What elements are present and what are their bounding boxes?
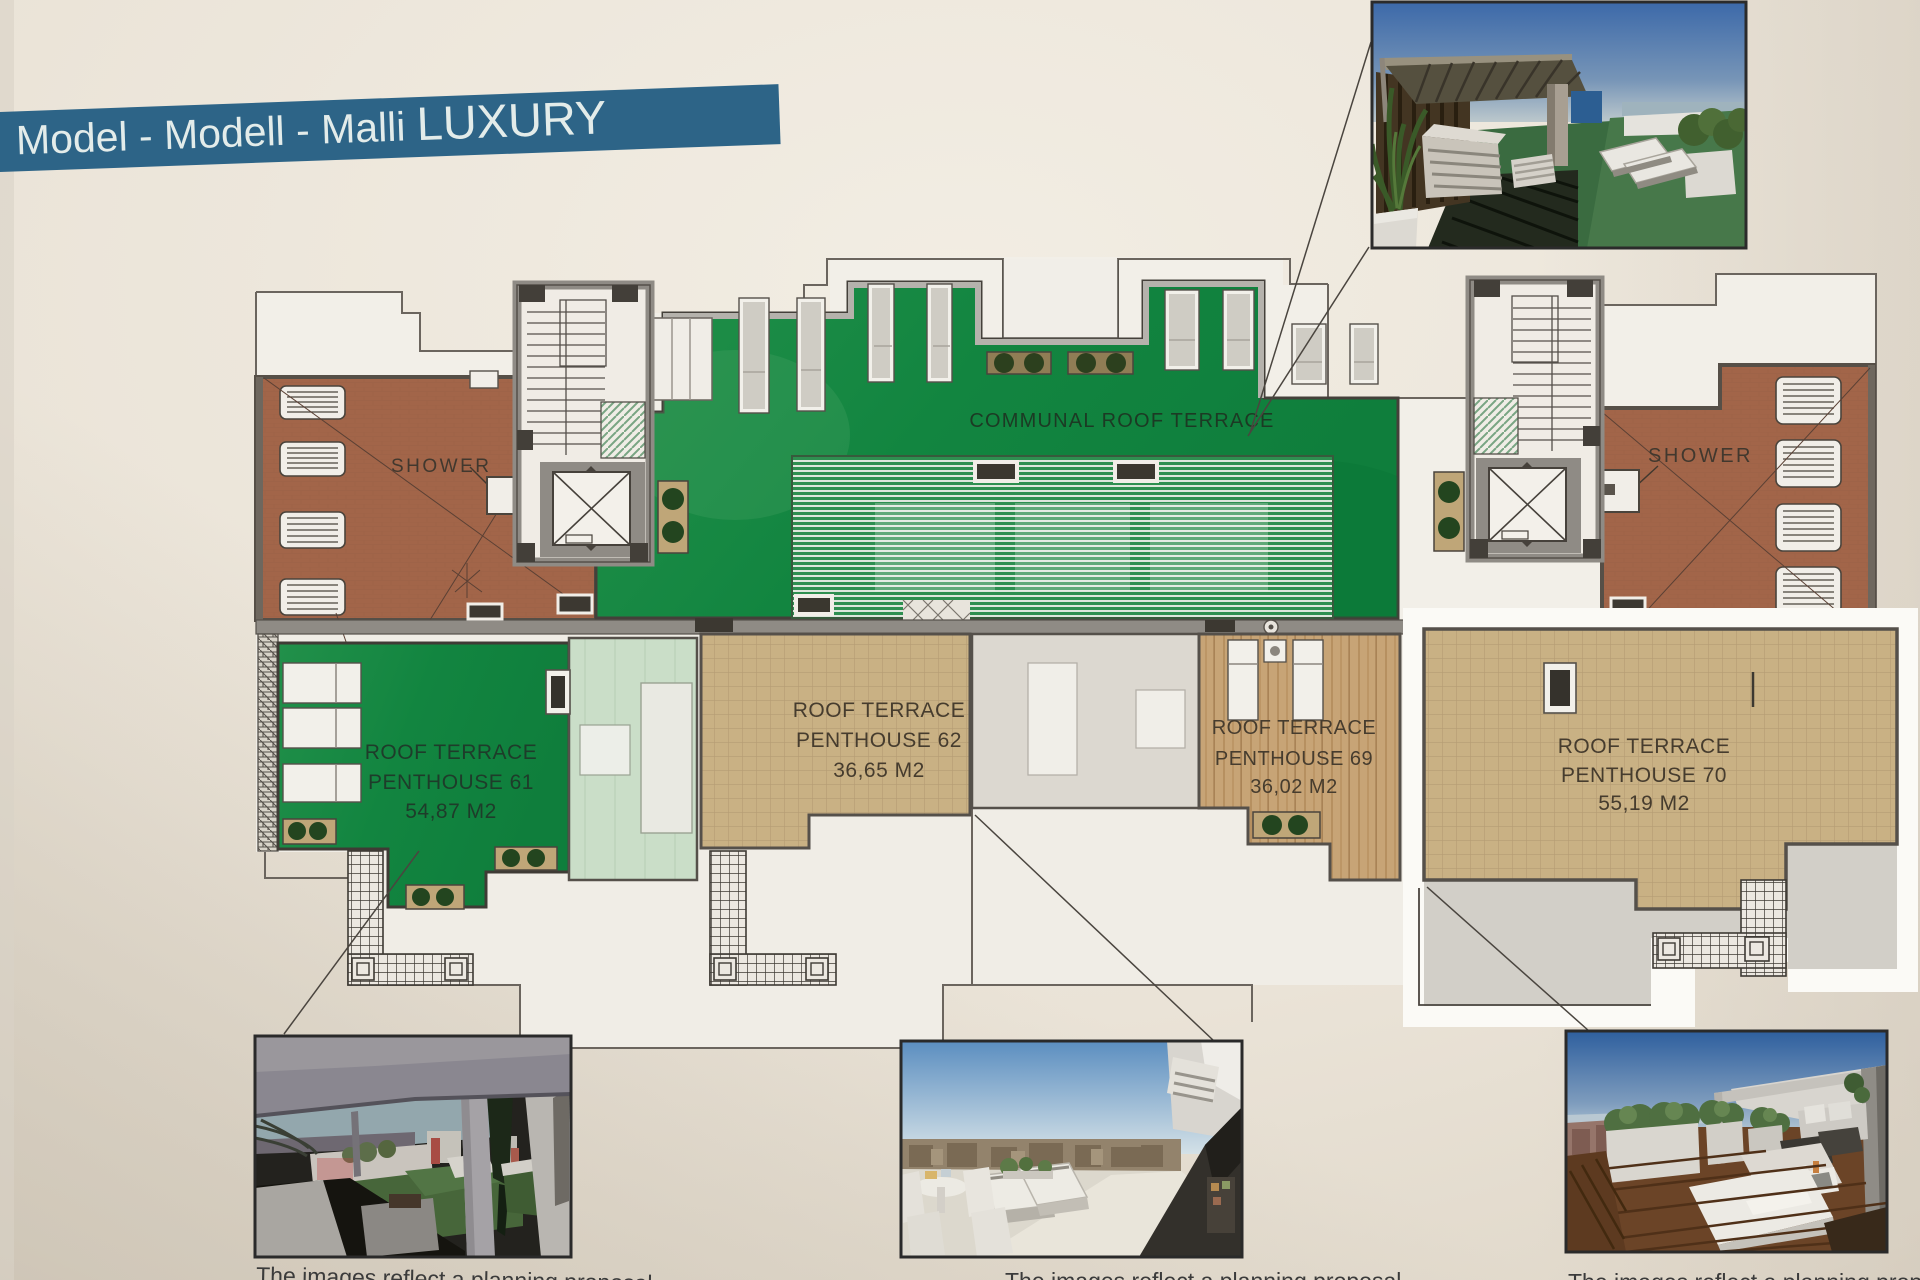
svg-text:COMMUNAL ROOF TERRACE: COMMUNAL ROOF TERRACE [969,410,1274,432]
svg-text:PENTHOUSE 61: PENTHOUSE 61 [368,771,534,794]
svg-text:ROOF TERRACE: ROOF TERRACE [793,699,965,722]
svg-text:PENTHOUSE 70: PENTHOUSE 70 [1561,764,1727,787]
svg-text:ROOF TERRACE: ROOF TERRACE [1212,717,1377,739]
svg-text:SHOWER: SHOWER [1648,445,1753,467]
svg-text:The images reflect a planning: The images reflect a planning proposal [1005,1268,1401,1280]
svg-text:PENTHOUSE 69: PENTHOUSE 69 [1215,748,1373,770]
svg-text:ROOF TERRACE: ROOF TERRACE [1558,735,1730,758]
svg-text:The images reflect a planning: The images reflect a planning proposal [1568,1269,1920,1280]
svg-text:55,19 M2: 55,19 M2 [1598,792,1690,815]
svg-text:36,65 M2: 36,65 M2 [833,759,925,782]
svg-text:36,02 M2: 36,02 M2 [1250,776,1337,798]
svg-text:54,87 M2: 54,87 M2 [405,800,497,823]
svg-text:ROOF TERRACE: ROOF TERRACE [365,741,537,764]
svg-text:PENTHOUSE 62: PENTHOUSE 62 [796,729,962,752]
